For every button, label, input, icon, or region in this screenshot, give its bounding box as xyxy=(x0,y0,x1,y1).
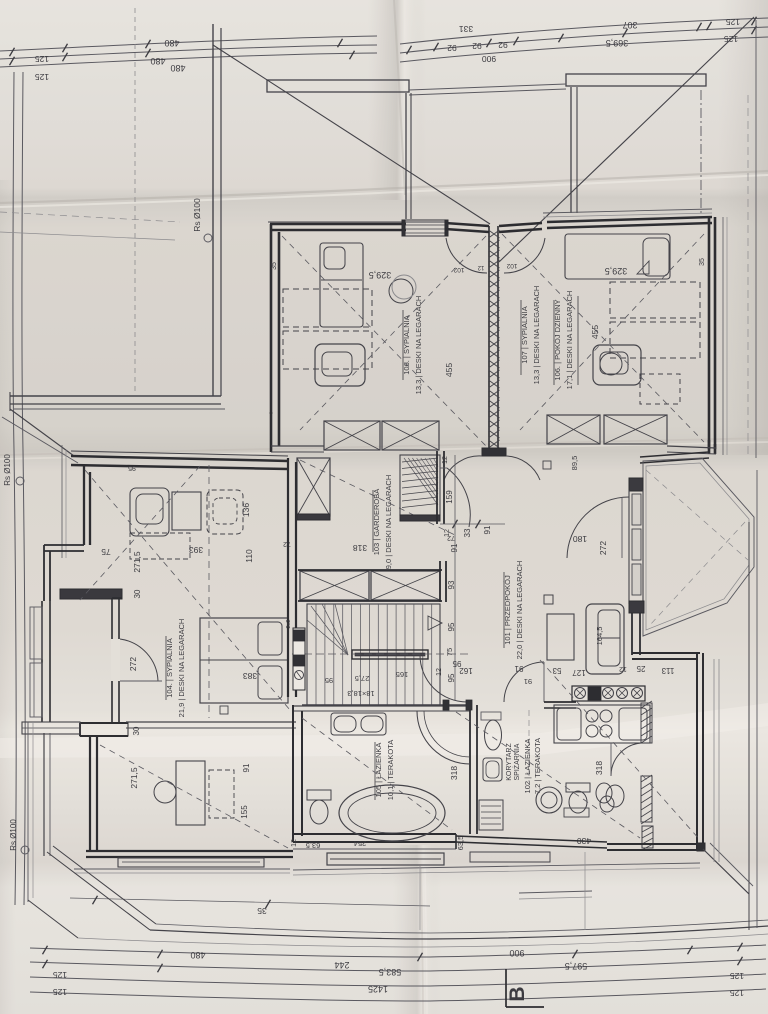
svg-text:13,3 | DESKI NA LEGARACH: 13,3 | DESKI NA LEGARACH xyxy=(532,286,541,385)
svg-text:92: 92 xyxy=(472,41,482,51)
svg-text:244: 244 xyxy=(334,960,349,970)
svg-text:125: 125 xyxy=(53,970,67,980)
svg-text:900: 900 xyxy=(509,948,524,958)
svg-text:92: 92 xyxy=(447,43,457,53)
svg-text:480: 480 xyxy=(150,56,165,66)
svg-text:91: 91 xyxy=(524,677,532,686)
svg-text:Rs Ø100: Rs Ø100 xyxy=(3,454,12,486)
svg-text:30: 30 xyxy=(132,726,141,735)
svg-text:164,5: 164,5 xyxy=(595,627,604,646)
svg-text:180: 180 xyxy=(573,534,587,544)
svg-text:10,1 | TERAKOTA: 10,1 | TERAKOTA xyxy=(386,740,395,800)
svg-text:318: 318 xyxy=(353,543,367,553)
svg-text:102: 102 xyxy=(506,262,517,269)
svg-text:2x2: 2x2 xyxy=(286,620,292,629)
svg-text:125: 125 xyxy=(35,72,49,82)
svg-text:329,5: 329,5 xyxy=(369,270,392,280)
svg-text:272: 272 xyxy=(598,541,608,555)
svg-text:165: 165 xyxy=(396,670,409,679)
svg-text:75: 75 xyxy=(101,547,111,557)
svg-text:30: 30 xyxy=(133,589,142,598)
svg-text:110: 110 xyxy=(244,549,254,563)
svg-text:27,5: 27,5 xyxy=(355,674,370,683)
svg-text:35: 35 xyxy=(699,258,706,266)
svg-text:25: 25 xyxy=(636,664,645,673)
svg-text:125: 125 xyxy=(726,17,740,27)
svg-text:480: 480 xyxy=(164,38,179,48)
svg-text:125: 125 xyxy=(53,987,67,997)
svg-text:900: 900 xyxy=(482,54,496,64)
svg-text:89,5: 89,5 xyxy=(570,456,579,471)
svg-text:91: 91 xyxy=(242,763,251,772)
svg-text:53: 53 xyxy=(552,666,561,675)
svg-text:113: 113 xyxy=(661,666,674,675)
svg-text:125: 125 xyxy=(730,988,744,998)
svg-text:329,5: 329,5 xyxy=(605,266,628,276)
svg-text:125: 125 xyxy=(730,971,744,981)
svg-text:12: 12 xyxy=(291,839,298,847)
svg-text:35: 35 xyxy=(257,906,267,916)
svg-text:12: 12 xyxy=(436,668,443,676)
svg-text:383: 383 xyxy=(243,671,257,681)
svg-text:Rs Ø100: Rs Ø100 xyxy=(192,198,202,232)
svg-text:95: 95 xyxy=(128,464,136,471)
svg-text:35: 35 xyxy=(271,262,278,270)
svg-text:63,5: 63,5 xyxy=(306,841,321,850)
svg-text:272: 272 xyxy=(128,657,138,671)
svg-text:7,2 | TERAKOTA: 7,2 | TERAKOTA xyxy=(533,738,542,794)
svg-text:125: 125 xyxy=(35,54,49,64)
svg-text:254: 254 xyxy=(354,839,367,848)
svg-text:SPIŻARNIA: SPIŻARNIA xyxy=(512,743,521,780)
svg-text:155: 155 xyxy=(240,805,249,819)
svg-text:91: 91 xyxy=(483,525,492,534)
svg-text:Rs Ø100: Rs Ø100 xyxy=(9,819,18,851)
svg-text:331: 331 xyxy=(459,24,473,34)
svg-text:159: 159 xyxy=(445,490,454,504)
svg-text:B: B xyxy=(506,986,529,1001)
svg-text:455: 455 xyxy=(590,325,600,339)
svg-text:393: 393 xyxy=(189,545,203,555)
svg-text:271,5: 271,5 xyxy=(129,767,139,789)
svg-text:455: 455 xyxy=(444,363,454,377)
svg-text:95: 95 xyxy=(325,676,333,685)
svg-text:136: 136 xyxy=(241,503,251,517)
svg-text:92: 92 xyxy=(498,40,508,50)
svg-text:12: 12 xyxy=(444,529,451,537)
svg-text:307: 307 xyxy=(622,20,637,30)
svg-text:9,0 | DESKI NA LEGARACH: 9,0 | DESKI NA LEGARACH xyxy=(384,475,393,569)
svg-text:271,5: 271,5 xyxy=(132,551,142,573)
svg-text:480: 480 xyxy=(170,63,185,73)
svg-text:583,5: 583,5 xyxy=(379,967,402,977)
svg-text:12: 12 xyxy=(619,665,627,672)
svg-text:95: 95 xyxy=(452,659,461,668)
svg-text:318: 318 xyxy=(594,761,604,775)
svg-text:318: 318 xyxy=(449,766,459,780)
svg-text:18×18,3: 18×18,3 xyxy=(347,689,374,698)
svg-text:KORYTARZ: KORYTARZ xyxy=(506,743,513,781)
svg-text:21,9 | DESKI NA LEGARACH: 21,9 | DESKI NA LEGARACH xyxy=(177,619,186,718)
svg-text:480: 480 xyxy=(190,950,205,960)
svg-text:369,5: 369,5 xyxy=(606,38,629,48)
svg-text:1425: 1425 xyxy=(368,984,388,994)
svg-text:17,1 | DESKI NA LEGARACH: 17,1 | DESKI NA LEGARACH xyxy=(565,291,574,390)
svg-text:597,5: 597,5 xyxy=(565,961,588,971)
svg-text:12: 12 xyxy=(442,456,449,464)
svg-text:12: 12 xyxy=(477,264,484,270)
svg-text:22,0 | DESKI NA LEGARACH: 22,0 | DESKI NA LEGARACH xyxy=(515,561,524,660)
svg-text:102 | ŁAZIENKA: 102 | ŁAZIENKA xyxy=(523,739,532,794)
svg-text:102: 102 xyxy=(453,266,464,273)
svg-text:33: 33 xyxy=(463,528,472,537)
svg-text:127: 127 xyxy=(572,668,586,677)
svg-text:75: 75 xyxy=(445,648,454,656)
svg-text:91: 91 xyxy=(450,543,459,552)
